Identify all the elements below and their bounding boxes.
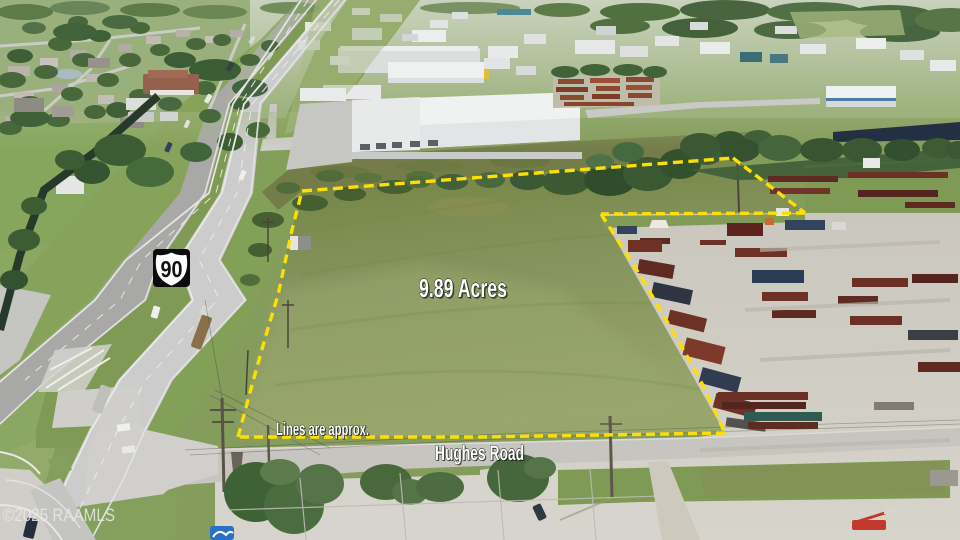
svg-text:90: 90 xyxy=(161,256,183,282)
svg-text:Hughes Road: Hughes Road xyxy=(435,442,524,465)
svg-text:9.89 Acres: 9.89 Acres xyxy=(419,273,507,303)
svg-text:©2025 RAAMLS: ©2025 RAAMLS xyxy=(3,505,115,525)
svg-text:Lines are approx.: Lines are approx. xyxy=(276,419,369,439)
